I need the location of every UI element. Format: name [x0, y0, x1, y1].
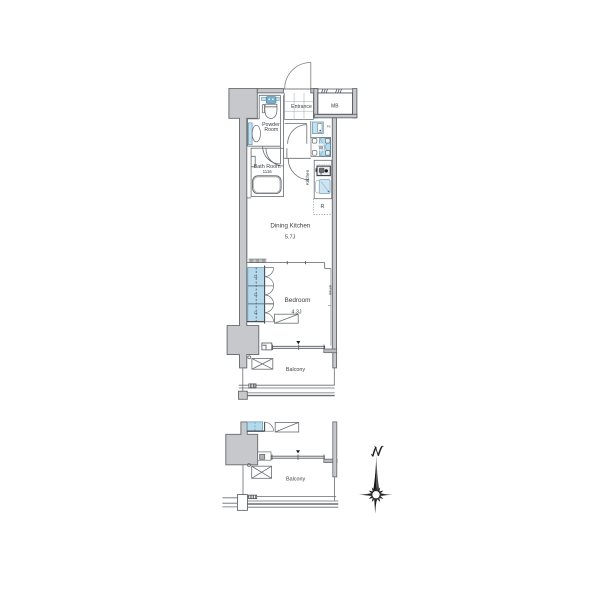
svg-text:Entrance: Entrance — [291, 104, 312, 110]
svg-text:Balcony: Balcony — [286, 367, 305, 373]
svg-text:Room: Room — [264, 127, 278, 133]
svg-text:CL: CL — [254, 293, 258, 297]
svg-text:MB: MB — [331, 104, 339, 110]
svg-text:物干金物: 物干金物 — [328, 285, 332, 296]
svg-text:4.3J: 4.3J — [291, 309, 301, 315]
svg-text:Bedroom: Bedroom — [285, 297, 311, 304]
svg-text:CL: CL — [254, 275, 258, 279]
svg-text:1116: 1116 — [263, 169, 273, 174]
svg-text:Balcony: Balcony — [286, 476, 305, 482]
svg-text:CL: CL — [254, 311, 258, 315]
svg-text:W: W — [319, 146, 324, 152]
svg-text:5.7J: 5.7J — [285, 235, 296, 241]
svg-text:Kitchen: Kitchen — [305, 169, 310, 185]
svg-text:Dining Kitchen: Dining Kitchen — [270, 222, 310, 229]
svg-text:PS: PS — [327, 125, 331, 129]
svg-text:R: R — [320, 204, 324, 210]
